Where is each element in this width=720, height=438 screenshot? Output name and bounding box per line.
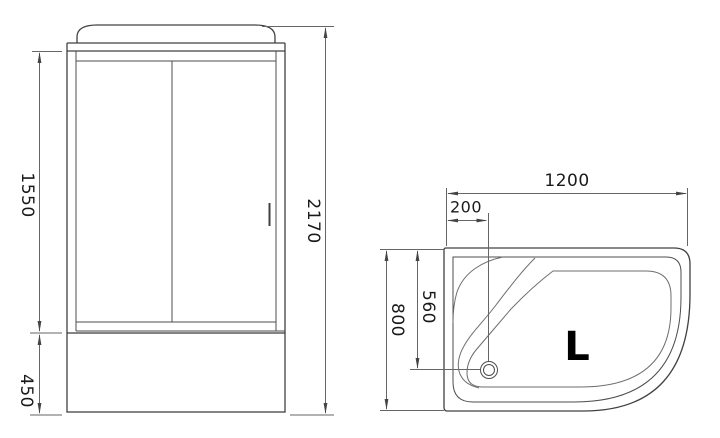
arrow-right-icon: [676, 192, 687, 196]
technical-drawing-canvas: 1550 450 2170: [0, 0, 720, 438]
arrow-down-icon: [38, 321, 42, 332]
dim-label-drain-depth: 560: [418, 290, 438, 324]
arrow-down-icon: [416, 358, 420, 369]
dim-label-base-height: 450: [16, 374, 36, 408]
arrow-left-icon: [447, 192, 458, 196]
dim-label-door-height: 1550: [17, 172, 37, 217]
dim-label-depth: 800: [387, 303, 407, 337]
arrow-up-icon: [416, 250, 420, 261]
tray-outline: L: [444, 248, 690, 411]
top-dimension-depth: 800: [380, 250, 444, 411]
arrow-down-icon: [324, 403, 328, 414]
arrow-up-icon: [38, 334, 42, 345]
roof-dome: [77, 25, 275, 43]
step-edge-curve: [458, 258, 535, 388]
arrow-down-icon: [38, 403, 42, 414]
cabin-base-panel: [67, 333, 285, 412]
arrow-down-icon: [385, 399, 389, 410]
basin-corner-curve: [453, 257, 503, 323]
dim-label-total-height: 2170: [303, 198, 323, 243]
top-dimension-width: 1200: [447, 171, 688, 246]
arrow-left-icon: [447, 219, 458, 223]
shower-cabin-drawing: 1550 450 2170: [0, 0, 720, 438]
arrow-up-icon: [324, 27, 328, 38]
arrow-up-icon: [385, 250, 389, 261]
front-dimensions-left: 1550 450: [16, 52, 62, 416]
arrow-up-icon: [38, 52, 42, 63]
front-view: 1550 450 2170: [16, 25, 334, 415]
dim-label-width: 1200: [544, 171, 589, 191]
drain-inner-ring: [484, 365, 495, 376]
top-view: L 1200 200 800: [380, 171, 690, 411]
dim-label-drain-offset: 200: [450, 198, 482, 217]
front-dimension-right: 2170: [262, 27, 334, 416]
cabin-outline: [67, 25, 285, 412]
top-dimension-drain-depth: 560: [410, 250, 480, 370]
arrow-right-icon: [477, 219, 488, 223]
orientation-label: L: [564, 324, 590, 370]
